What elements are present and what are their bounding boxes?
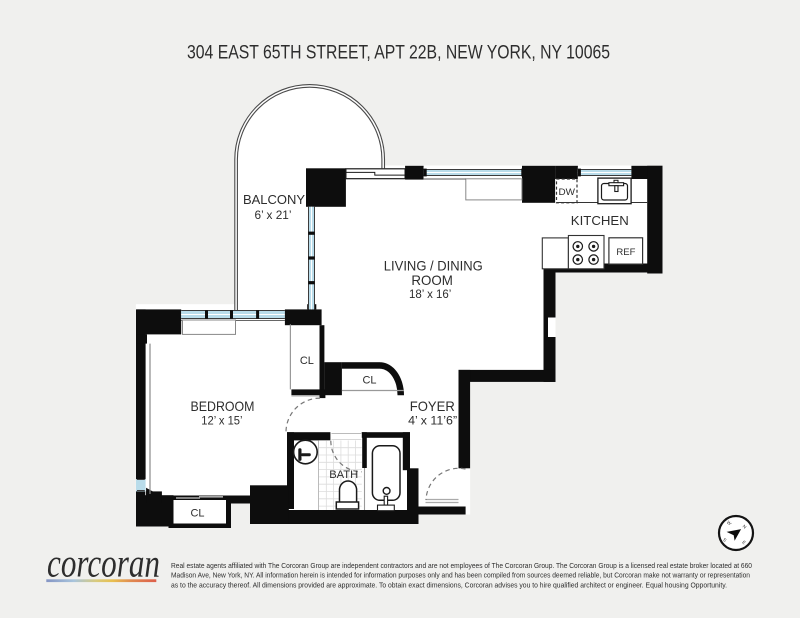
svg-text:BATH: BATH bbox=[329, 469, 358, 481]
svg-text:304 EAST 65TH STREET, APT 22B,: 304 EAST 65TH STREET, APT 22B, NEW YORK,… bbox=[187, 43, 610, 64]
svg-text:CL: CL bbox=[191, 508, 205, 520]
svg-text:KITCHEN: KITCHEN bbox=[571, 213, 629, 228]
svg-text:18’ x 16’: 18’ x 16’ bbox=[409, 287, 451, 301]
svg-text:corcoran: corcoran bbox=[47, 541, 160, 586]
svg-text:BEDROOM: BEDROOM bbox=[191, 399, 255, 414]
svg-text:CL: CL bbox=[363, 374, 377, 386]
svg-text:4’ x 11’6”: 4’ x 11’6” bbox=[408, 413, 457, 427]
svg-text:Real estate agents affiliated: Real estate agents affiliated with The C… bbox=[171, 563, 752, 570]
svg-text:CL: CL bbox=[300, 355, 314, 367]
svg-text:ROOM: ROOM bbox=[411, 273, 453, 288]
svg-text:Madison Ave, New York, NY. All: Madison Ave, New York, NY. All informati… bbox=[171, 573, 750, 580]
svg-text:12’ x 15’: 12’ x 15’ bbox=[201, 414, 242, 428]
svg-text:as to the accuracy thereof. Al: as to the accuracy thereof. All dimensio… bbox=[171, 582, 727, 589]
svg-text:DW: DW bbox=[559, 187, 576, 198]
svg-text:BALCONY: BALCONY bbox=[243, 192, 305, 207]
svg-text:FOYER: FOYER bbox=[410, 399, 455, 414]
svg-text:LIVING / DINING: LIVING / DINING bbox=[384, 258, 483, 273]
svg-text:REF: REF bbox=[616, 247, 635, 258]
svg-text:6’ x 21’: 6’ x 21’ bbox=[255, 208, 292, 222]
